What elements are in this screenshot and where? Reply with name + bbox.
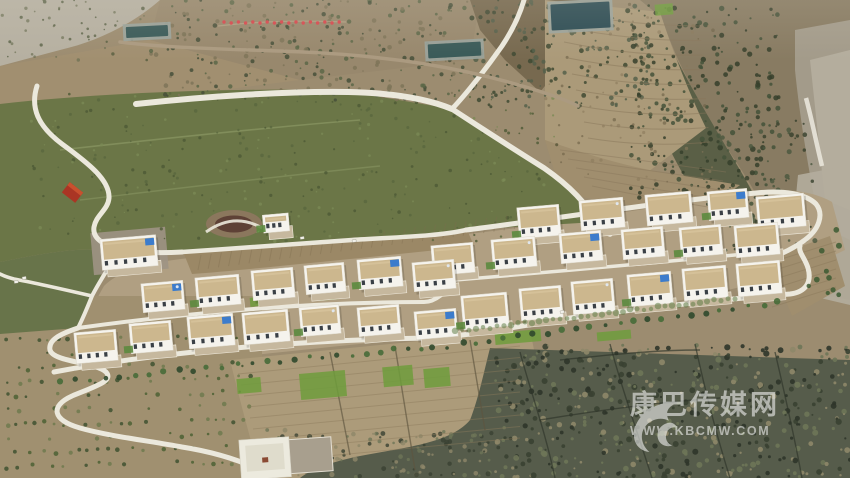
house: [304, 262, 350, 302]
village-plaza: [206, 210, 262, 238]
watermark: 康巴传媒网 WWW.KBCMW.COM: [630, 391, 780, 438]
house: [74, 329, 122, 371]
house: [414, 308, 462, 347]
house: [100, 234, 162, 277]
house: [357, 304, 405, 344]
kbcmw-logo-icon: [630, 397, 684, 453]
haze-overlay: [0, 0, 850, 60]
house: [141, 280, 189, 320]
house: [251, 267, 299, 308]
house: [734, 222, 784, 265]
compound-building-bottom: [239, 434, 334, 478]
aerial-photo-mountain-village: 康巴传媒网 WWW.KBCMW.COM: [0, 0, 850, 478]
house: [559, 230, 607, 271]
house: [412, 259, 460, 299]
house: [621, 226, 669, 267]
house: [187, 313, 239, 356]
house: [645, 191, 697, 233]
house: [736, 260, 786, 304]
house: [242, 309, 294, 352]
